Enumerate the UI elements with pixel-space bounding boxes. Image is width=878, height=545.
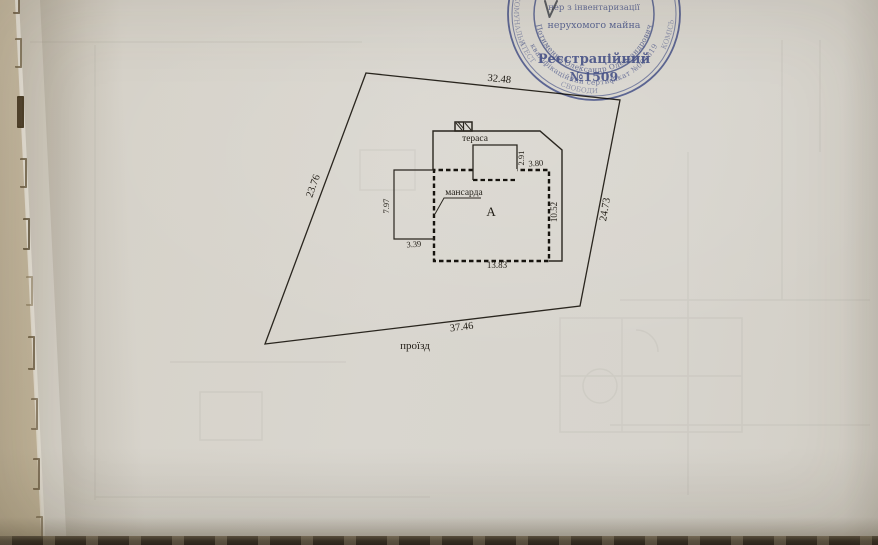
document-photo: 32.48 23.76 24.73 37.46 проїзд тераса ма… bbox=[0, 0, 878, 545]
bottom-page-shadow bbox=[0, 517, 878, 537]
stamp-line-1: нер з інвентаризації bbox=[548, 3, 640, 13]
stamp-line-2: нерухомого майна bbox=[548, 20, 641, 31]
registration-stamp: нер з інвентаризації нерухомого майна Ре… bbox=[0, 0, 878, 545]
bottom-page-edge bbox=[0, 536, 878, 545]
